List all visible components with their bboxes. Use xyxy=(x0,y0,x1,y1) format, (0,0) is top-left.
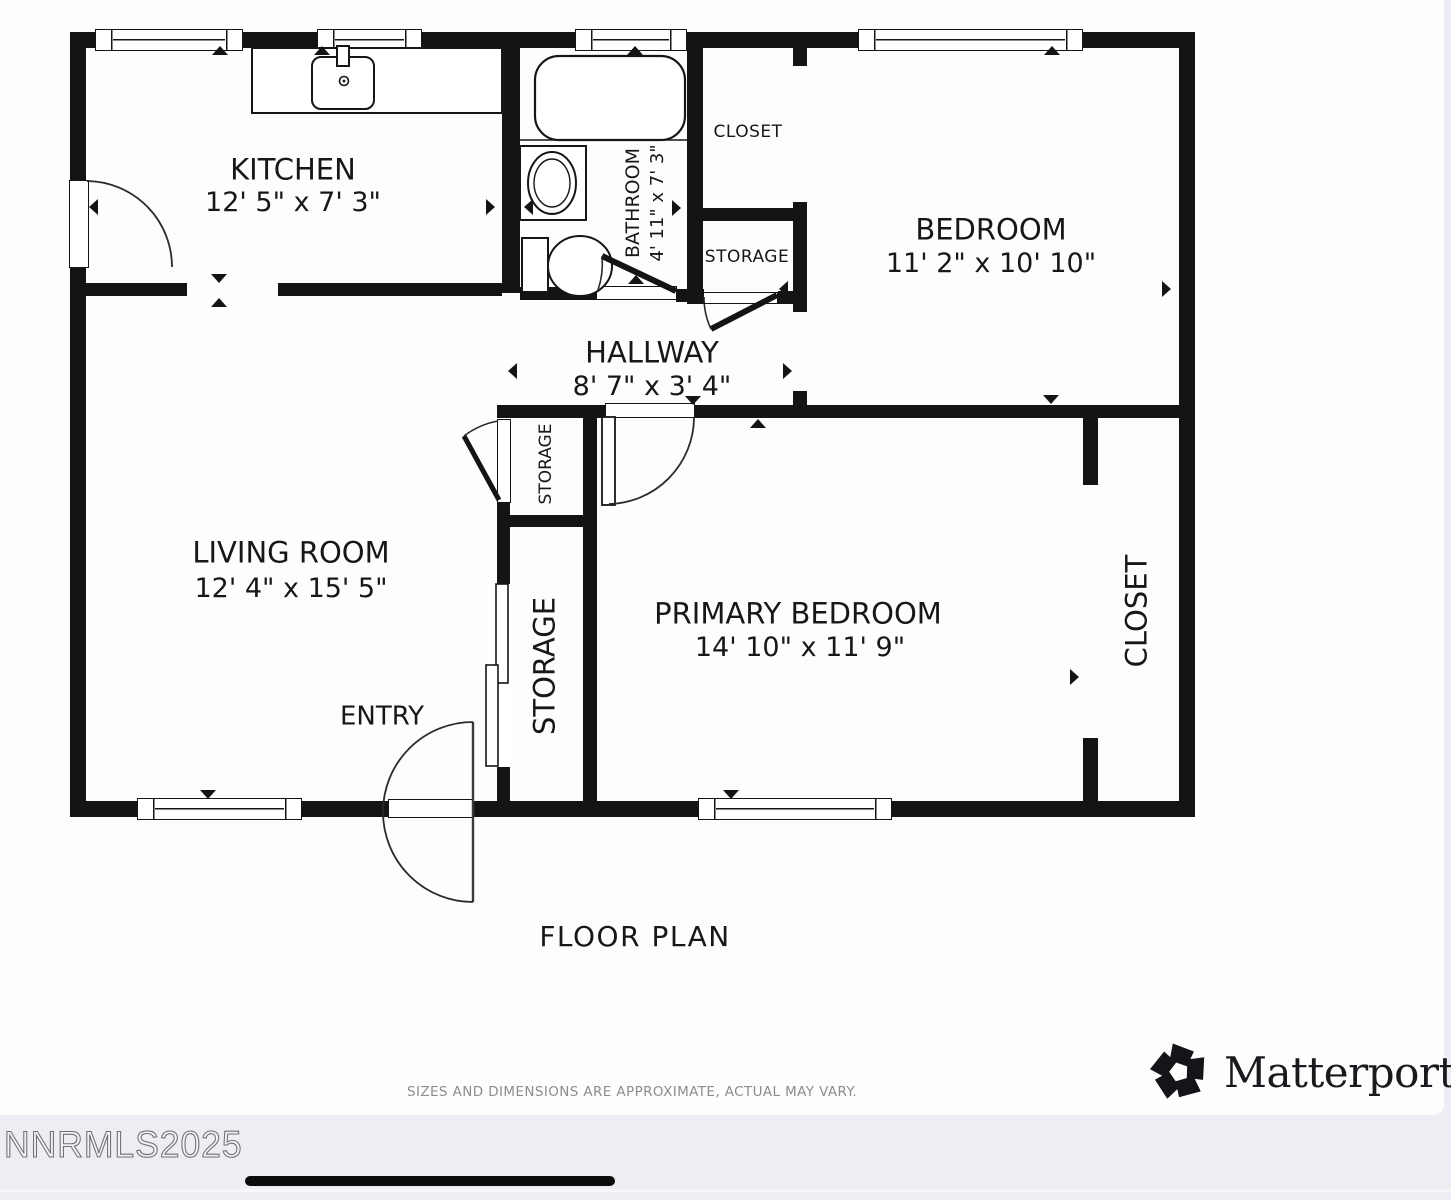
room-label-entry: ENTRY xyxy=(340,701,424,732)
wall xyxy=(497,405,605,418)
direction-arrow-icon xyxy=(200,790,216,799)
direction-arrow-icon xyxy=(783,363,792,379)
wall xyxy=(793,48,807,66)
disclaimer-text: SIZES AND DIMENSIONS ARE APPROXIMATE, AC… xyxy=(407,1084,857,1100)
storage-small-door-arc xyxy=(464,421,498,436)
wall xyxy=(278,283,502,296)
direction-arrow-icon xyxy=(750,419,766,428)
direction-arrow-icon xyxy=(524,199,533,215)
window xyxy=(137,798,302,820)
direction-arrow-icon xyxy=(627,46,643,55)
direction-arrow-icon xyxy=(628,275,644,284)
wall xyxy=(695,405,1179,418)
direction-arrow-icon xyxy=(723,790,739,799)
room-label-storage-tall: STORAGE xyxy=(528,597,563,735)
wall xyxy=(1083,738,1098,801)
kitchen-sink-drain-dot xyxy=(343,80,346,83)
direction-arrow-icon xyxy=(1044,46,1060,55)
room-dims-kitchen: 12' 5" x 7' 3" xyxy=(205,187,381,219)
direction-arrow-icon xyxy=(586,669,595,685)
kitchen-door-arc xyxy=(87,181,172,267)
door-opening xyxy=(388,799,473,818)
wall xyxy=(583,418,597,801)
wall xyxy=(497,765,510,802)
wall xyxy=(70,32,86,817)
kitchen-counter xyxy=(252,48,502,113)
wall xyxy=(793,202,807,312)
door-opening xyxy=(497,419,511,503)
wall xyxy=(1083,418,1098,485)
wall xyxy=(497,503,510,585)
sliding-door-panel xyxy=(486,665,498,766)
room-dims-hallway: 8' 7" x 3' 4" xyxy=(573,371,732,403)
kitchen-sink-drain xyxy=(340,77,349,86)
window xyxy=(317,29,422,51)
room-dims-living-room: 12' 4" x 15' 5" xyxy=(194,573,387,605)
door-opening xyxy=(69,180,89,268)
bathroom-door-arc xyxy=(598,256,602,290)
primary-door-arc xyxy=(609,418,694,504)
room-label-bathroom-name: BATHROOM xyxy=(621,144,646,261)
room-label-closet-top: CLOSET xyxy=(713,122,782,142)
room-label-hallway: HALLWAY xyxy=(585,336,719,371)
room-label-storage-small: STORAGE xyxy=(536,424,556,505)
wall xyxy=(687,48,703,304)
room-label-bedroom: BEDROOM xyxy=(915,213,1066,248)
direction-arrow-icon xyxy=(508,363,517,379)
room-label-closet-right: CLOSET xyxy=(1120,555,1155,668)
direction-arrow-icon xyxy=(486,199,495,215)
bathroom-sink-inner xyxy=(534,159,570,207)
kitchen-sink xyxy=(312,57,374,109)
plan-canvas: KITCHEN 12' 5" x 7' 3" BATHROOM 4' 11" x… xyxy=(0,0,1444,1115)
direction-arrow-icon xyxy=(211,298,227,307)
room-label-kitchen: KITCHEN xyxy=(230,153,356,188)
room-label-bathroom: BATHROOM 4' 11" x 7' 3" xyxy=(621,144,669,261)
room-dims-bedroom: 11' 2" x 10' 10" xyxy=(886,248,1096,280)
wall xyxy=(520,287,596,300)
mls-watermark: NNRMLS2025 xyxy=(4,1124,243,1166)
wall xyxy=(502,48,520,293)
direction-arrow-icon xyxy=(672,200,681,216)
page-title: FLOOR PLAN xyxy=(539,920,730,954)
bathtub xyxy=(535,56,685,140)
brand-name: Matterport® xyxy=(1224,1048,1451,1097)
door-opening xyxy=(605,403,695,418)
direction-arrow-icon xyxy=(89,199,98,215)
direction-arrow-icon xyxy=(211,274,227,283)
wall xyxy=(700,208,807,221)
wall xyxy=(793,391,807,406)
matterport-logo-icon xyxy=(1148,1040,1210,1104)
floor-plan-page: KITCHEN 12' 5" x 7' 3" BATHROOM 4' 11" x… xyxy=(0,0,1451,1200)
redaction-bar xyxy=(245,1176,615,1186)
door-opening xyxy=(703,292,778,304)
storage-small-door-leaf xyxy=(464,436,499,500)
window xyxy=(698,798,892,820)
wall xyxy=(510,515,583,527)
brand-name-text: Matterport xyxy=(1224,1048,1451,1097)
direction-arrow-icon xyxy=(779,281,788,297)
wall xyxy=(1179,32,1195,817)
bathroom-sink xyxy=(528,152,576,214)
wall xyxy=(86,283,187,296)
room-label-storage-top: STORAGE xyxy=(705,247,789,267)
room-label-primary-bedroom: PRIMARY BEDROOM xyxy=(654,597,942,632)
primary-door-leaf xyxy=(602,417,615,505)
door-opening xyxy=(596,286,677,300)
direction-arrow-icon xyxy=(314,46,330,55)
brand-lockup: Matterport® xyxy=(1148,1040,1451,1104)
room-dims-bathroom: 4' 11" x 7' 3" xyxy=(646,144,669,261)
toilet-tank xyxy=(522,238,548,292)
footer-divider xyxy=(0,1189,1451,1192)
direction-arrow-icon xyxy=(1070,669,1079,685)
room-dims-primary-bedroom: 14' 10" x 11' 9" xyxy=(695,632,905,664)
direction-arrow-icon xyxy=(1043,395,1059,404)
direction-arrow-icon xyxy=(1162,281,1171,297)
sliding-door-underlay xyxy=(486,584,511,767)
direction-arrow-icon xyxy=(690,295,706,304)
room-label-living-room: LIVING ROOM xyxy=(192,536,389,571)
direction-arrow-icon xyxy=(212,46,228,55)
sliding-door-panel xyxy=(496,584,508,683)
